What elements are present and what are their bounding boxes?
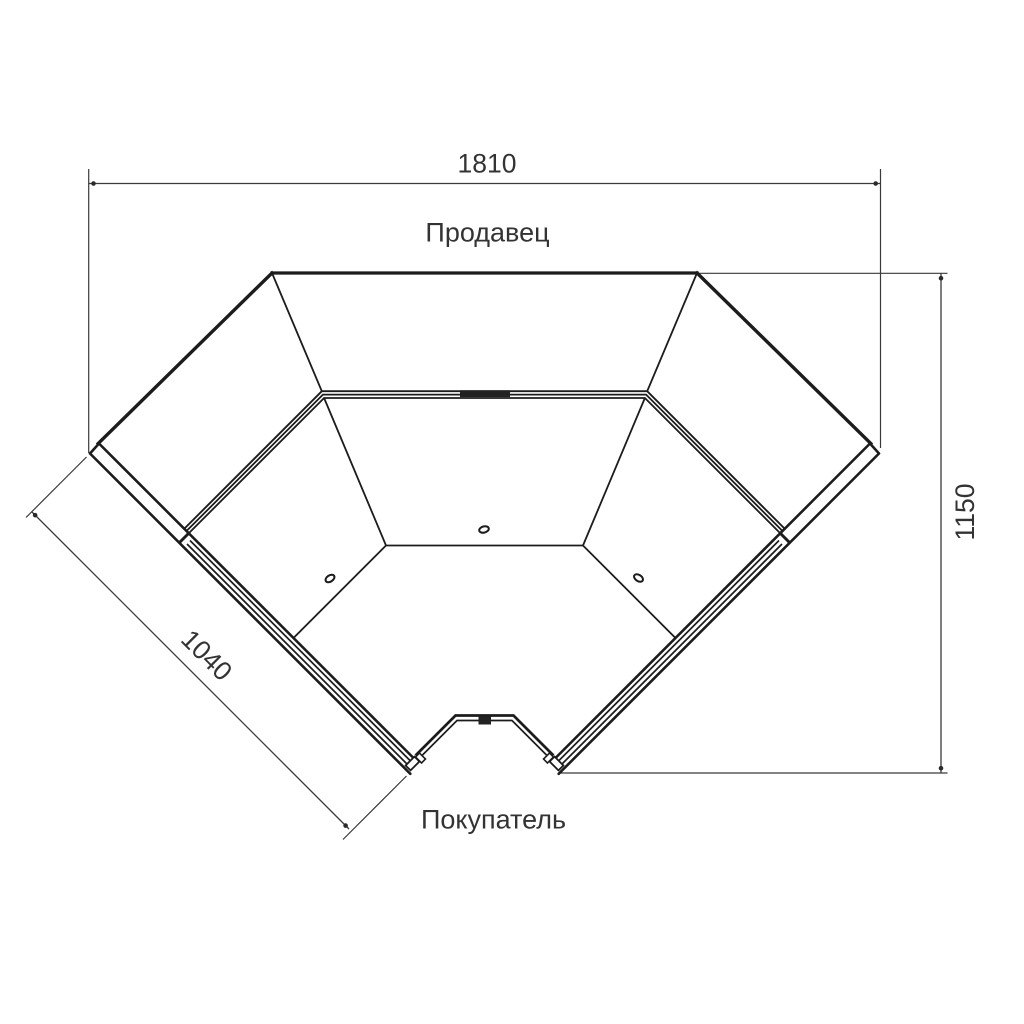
svg-text:1810: 1810 bbox=[458, 149, 517, 179]
svg-text:1150: 1150 bbox=[950, 484, 980, 541]
svg-text:Покупатель: Покупатель bbox=[421, 805, 566, 835]
svg-text:Продавец: Продавец bbox=[425, 218, 549, 248]
